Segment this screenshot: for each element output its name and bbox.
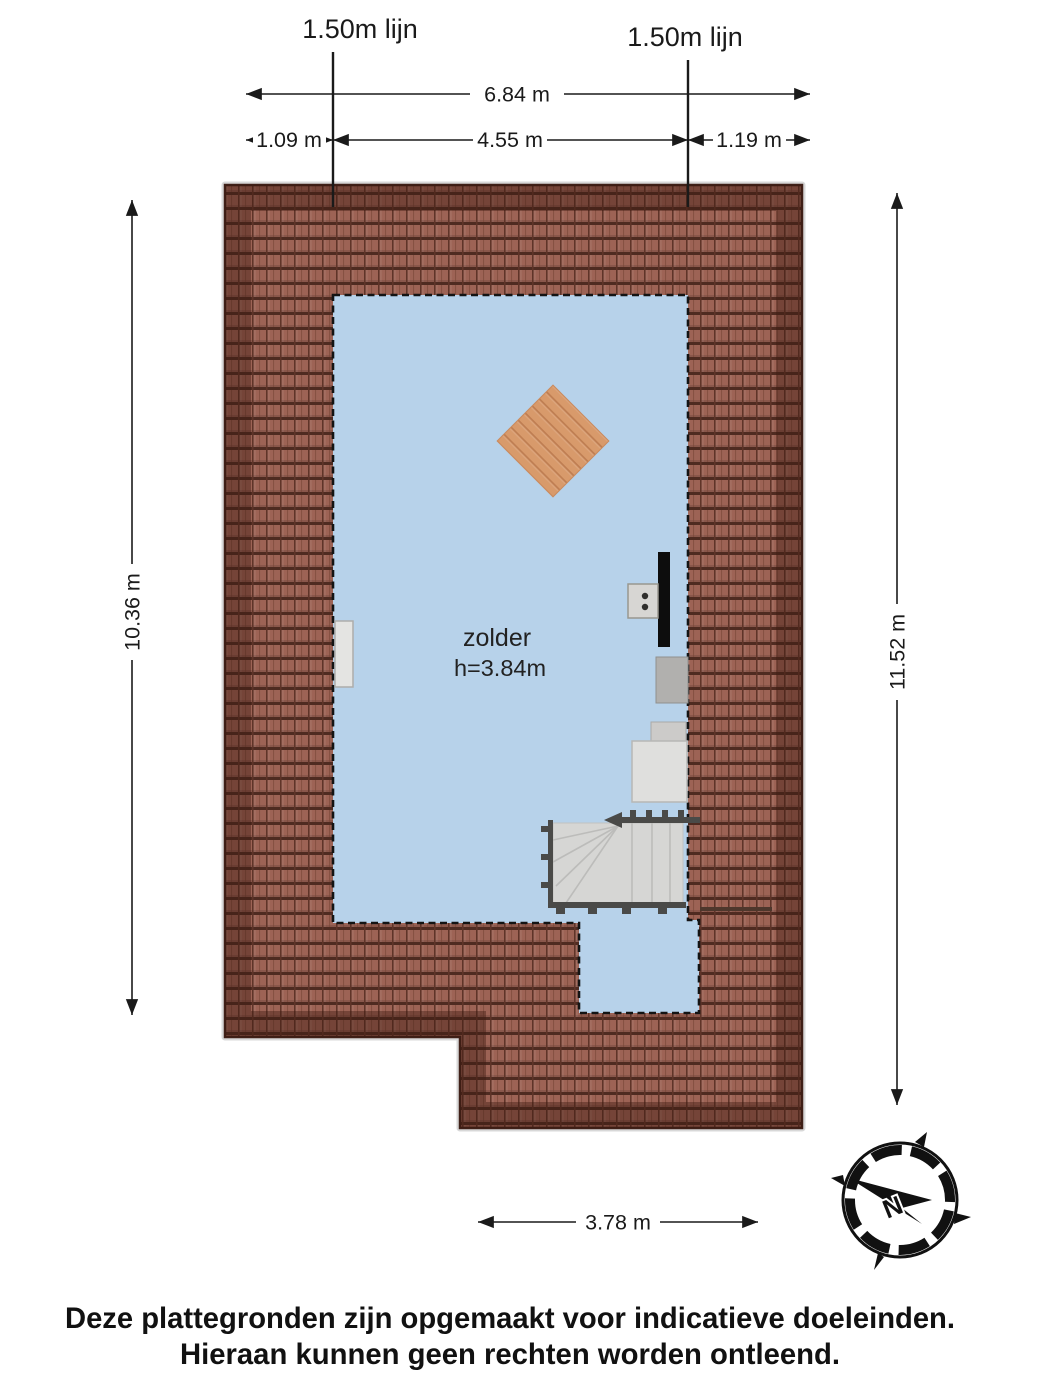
room-height-label: h=3.84m xyxy=(454,655,546,681)
railing-post xyxy=(622,908,631,914)
railing-post xyxy=(541,826,548,832)
railing-post xyxy=(556,908,565,914)
dim-height-right-label: 11.52 m xyxy=(886,614,910,690)
outlet-dot xyxy=(642,593,648,599)
stair-railing-top xyxy=(618,817,700,823)
dim-center-width-label: 4.55 m xyxy=(477,128,543,152)
disclaimer-line-1: Deze plattegronden zijn opgemaakt voor i… xyxy=(65,1302,955,1335)
stair-railing-bottom xyxy=(548,902,686,908)
storage-box-large xyxy=(632,741,687,802)
power-outlet xyxy=(628,584,658,618)
outlet-dot xyxy=(642,604,648,610)
dim-right-offset-label: 1.19 m xyxy=(716,128,782,152)
dimension-left-offset: 1.09 m xyxy=(246,128,333,152)
room-name-label: zolder xyxy=(463,624,531,652)
disclaimer-line-2: Hieraan kunnen geen rechten worden ontle… xyxy=(180,1338,840,1371)
floorplan-page: zolder h=3.84m xyxy=(0,0,1038,1384)
radiator-panel xyxy=(335,621,353,687)
outlet-box xyxy=(628,584,658,618)
railing-post xyxy=(678,810,684,817)
dim-height-left-label: 10.36 m xyxy=(121,573,145,651)
railing-post xyxy=(630,810,636,817)
headroom-label-left: 1.50m lijn xyxy=(302,14,418,44)
storage-box-dark xyxy=(656,657,688,703)
railing-post xyxy=(588,908,597,914)
chimney-bar xyxy=(658,552,670,647)
staircase xyxy=(541,810,700,914)
dim-left-offset-label: 1.09 m xyxy=(256,128,322,152)
railing-post xyxy=(541,882,548,888)
stair-railing-left xyxy=(548,820,553,906)
attic-floorplan: zolder h=3.84m xyxy=(0,0,1038,1384)
railing-post xyxy=(658,908,667,914)
railing-post xyxy=(541,854,548,860)
dim-bottom-width-label: 3.78 m xyxy=(585,1211,651,1235)
railing-post xyxy=(646,810,652,817)
headroom-label-right: 1.50m lijn xyxy=(627,22,743,52)
railing-post xyxy=(662,810,668,817)
dim-total-width-label: 6.84 m xyxy=(484,83,550,107)
